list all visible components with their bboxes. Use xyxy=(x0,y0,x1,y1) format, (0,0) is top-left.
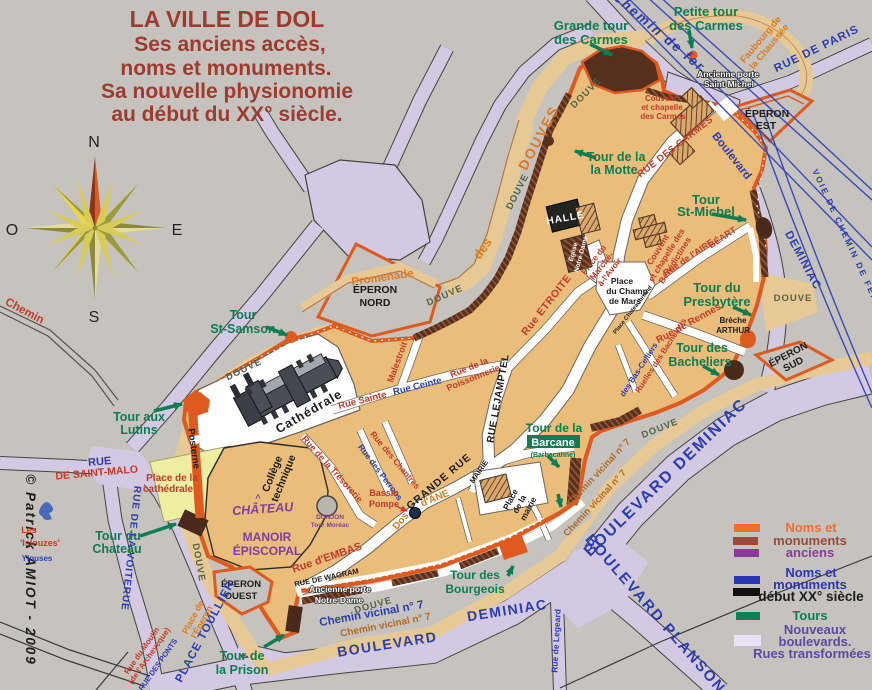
svg-text:MANOIR: MANOIR xyxy=(243,530,292,544)
svg-text:la Motte: la Motte xyxy=(590,163,637,177)
svg-text:Bassin: Bassin xyxy=(369,488,399,498)
svg-text:Place: Place xyxy=(611,276,633,286)
svg-text:Petite tour: Petite tour xyxy=(674,4,738,19)
svg-text:Place de la: Place de la xyxy=(146,473,198,484)
svg-text:^: ^ xyxy=(255,493,261,503)
svg-text:Tour de: Tour de xyxy=(220,649,265,663)
svg-text:ARTHUR: ARTHUR xyxy=(716,326,750,335)
svg-text:Ylouses: Ylouses xyxy=(22,554,53,563)
svg-text:N: N xyxy=(88,134,100,151)
svg-text:ÉPISCOPAL: ÉPISCOPAL xyxy=(233,543,301,558)
svg-text:Tour du: Tour du xyxy=(693,280,740,295)
svg-text:Lutins: Lutins xyxy=(120,423,158,437)
svg-text:ÉPERON: ÉPERON xyxy=(745,107,789,120)
svg-text:Sa nouvelle physionomie: Sa nouvelle physionomie xyxy=(101,80,353,103)
svg-text:Ses anciens accès,: Ses anciens accès, xyxy=(134,33,325,56)
svg-text:Tour aux: Tour aux xyxy=(113,410,165,424)
svg-text:Rues transformées: Rues transformées xyxy=(753,646,871,661)
svg-text:Grande tour: Grande tour xyxy=(554,18,628,33)
svg-text:et chapelle: et chapelle xyxy=(641,103,683,112)
svg-text:St-Michel: St-Michel xyxy=(677,204,735,219)
svg-text:Tour: Tour xyxy=(230,308,257,322)
svg-text:Bacheliers: Bacheliers xyxy=(668,355,731,369)
svg-text:Les: Les xyxy=(21,525,37,535)
svg-text:DONJON: DONJON xyxy=(316,514,344,521)
svg-text:O: O xyxy=(6,222,18,239)
svg-text:anciens: anciens xyxy=(786,545,834,560)
svg-text:EST: EST xyxy=(756,120,777,132)
svg-text:Tours: Tours xyxy=(792,608,827,623)
svg-text:DOUVE: DOUVE xyxy=(774,293,813,304)
svg-text:Ancienne porte: Ancienne porte xyxy=(309,584,371,594)
svg-text:Couvent: Couvent xyxy=(645,94,677,103)
svg-text:la Prison: la Prison xyxy=(216,663,269,677)
svg-text:début XX° siècle: début XX° siècle xyxy=(758,589,864,604)
svg-text:© Patrick AMIOT - 2009: © Patrick AMIOT - 2009 xyxy=(23,474,38,666)
svg-text:Ancienne porte: Ancienne porte xyxy=(697,69,759,79)
svg-text:LA VILLE DE DOL: LA VILLE DE DOL xyxy=(130,6,325,32)
svg-text:des Carmes: des Carmes xyxy=(669,18,743,33)
svg-text:St-Samson: St-Samson xyxy=(210,322,275,336)
svg-text:E: E xyxy=(172,222,183,239)
svg-text:Tour Moréac: Tour Moréac xyxy=(311,522,350,529)
svg-text:au début du XX° siècle.: au début du XX° siècle. xyxy=(111,103,342,126)
svg-text:Brèche: Brèche xyxy=(719,316,747,325)
svg-text:Bourgeois: Bourgeois xyxy=(445,582,505,596)
svg-text:des Carmes: des Carmes xyxy=(554,32,628,47)
svg-text:Notre-Dame: Notre-Dame xyxy=(315,595,363,605)
svg-text:Tour de la: Tour de la xyxy=(587,150,647,164)
svg-text:cathédrale: cathédrale xyxy=(143,484,193,495)
svg-text:NORD: NORD xyxy=(360,297,391,309)
svg-text:'Islouzes': 'Islouzes' xyxy=(20,538,60,548)
svg-text:des Carmes: des Carmes xyxy=(640,112,686,121)
svg-text:Pompe: Pompe xyxy=(369,499,399,509)
svg-text:Saint-Michel: Saint-Michel xyxy=(704,79,754,89)
svg-text:Barcane: Barcane xyxy=(531,437,574,449)
svg-text:Tour des: Tour des xyxy=(676,341,728,355)
svg-text:noms et monuments.: noms et monuments. xyxy=(120,57,331,80)
svg-text:S: S xyxy=(89,309,100,326)
svg-text:Tour des: Tour des xyxy=(450,568,500,582)
svg-text:Tour de la: Tour de la xyxy=(526,421,583,435)
svg-text:(Barbacanne): (Barbacanne) xyxy=(531,452,576,459)
